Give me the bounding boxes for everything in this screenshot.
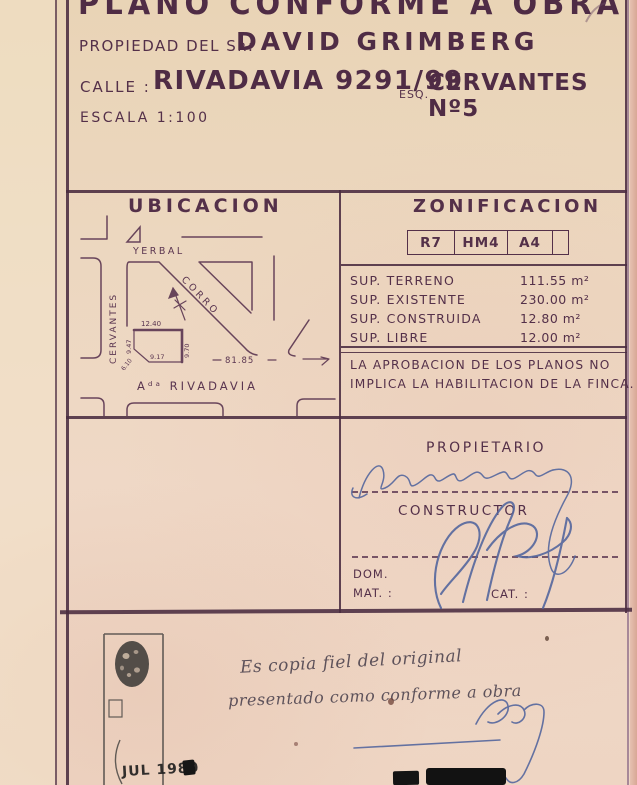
footer-signature-loop2 [498,705,525,723]
zonif-inner-divider [341,264,627,266]
surface-value: 111.55 m² [520,273,612,288]
black-stamp-block-small [393,771,419,785]
street-label-yerbal: YERBAL [132,246,185,257]
zoning-code-r: R7 [408,231,455,254]
ink-speck [294,742,298,746]
lot-dim-left: 9.47 [125,340,133,354]
map-rivadavia-arrow [303,357,329,365]
surface-label: SUP. LIBRE [350,330,428,345]
stamp-date-blob [182,759,196,775]
pen-mark [580,0,620,30]
binding-line [55,0,57,785]
ink-speck [388,698,394,705]
lot-dim-front: 12.40 [141,320,161,328]
scale-label: ESCALA 1:100 [80,110,210,126]
lot-dim-bottom: 9.17 [150,353,164,361]
approval-note-line2: IMPLICA LA HABILITACION DE LA FINCA. [350,377,635,391]
ink-speck [545,636,549,641]
signatures-ink [345,430,630,611]
frontage-value: 81.85 [225,356,254,366]
black-stamp-block-large [426,768,506,785]
owner-name: DAVID GRIMBERG [236,27,538,56]
surface-label: SUP. EXISTENTE [350,292,466,307]
surface-label: SUP. CONSTRUIDA [350,311,482,326]
lot-dim-ochava: 6.10 [120,357,134,372]
zoning-code-box: R7 HM4 A4 [407,230,569,255]
surface-label: SUP. TERRENO [350,273,455,288]
stamp-inner-box [109,700,122,717]
page-title: PLANO CONFORME A OBRA [78,0,624,22]
street-esq-label: ESQ. [399,88,429,101]
street-label-cervantes: CERVANTES [109,293,119,364]
certification-note-line1: Es copia fiel del original [240,646,463,678]
lot-dim-right: 9.70 [183,344,191,358]
map-block-s [127,403,223,416]
north-arrow-icon [169,288,186,320]
location-map: YERBAL CERVANTES CORRO Aᵈᵃ RIVADAVIA 81.… [67,192,339,416]
column-divider [339,190,341,613]
zonif-double-line-b [341,352,627,354]
map-corner-nw [81,216,107,239]
approval-note-line1: LA APROBACION DE LOS PLANOS NO [350,358,611,372]
surface-row-existente: SUP. EXISTENTE 230.00 m² [350,290,612,309]
map-cervantes-east-edge [127,262,129,326]
map-corro-west-edge [129,262,257,355]
street-label: CALLE : [80,78,151,96]
zoning-code-empty [553,231,568,254]
surface-table: SUP. TERRENO 111.55 m² SUP. EXISTENTE 23… [350,271,612,347]
scanned-plan-document: PLANO CONFORME A OBRA PROPIEDAD DEL Sʀ: … [0,0,637,785]
surface-row-terreno: SUP. TERRENO 111.55 m² [350,271,612,290]
surface-row-libre: SUP. LIBRE 12.00 m² [350,328,612,347]
owner-label: PROPIEDAD DEL Sʀ: [79,37,254,55]
map-block-se [297,399,335,416]
footer-signature-loop1 [476,700,508,724]
map-block-east [274,256,309,356]
surface-value: 12.00 m² [520,330,612,345]
street-label-corro: CORRO [179,274,222,317]
surface-value: 12.80 m² [520,311,612,326]
street-label-rivadavia: Aᵈᵃ RIVADAVIA [137,379,258,393]
mid-divider [66,416,627,419]
footer-signature-line [354,740,500,748]
zonificacion-title: ZONIFICACION [413,196,602,217]
surface-value: 230.00 m² [520,292,612,307]
surface-row-construida: SUP. CONSTRUIDA 12.80 m² [350,309,612,328]
map-triangle-mark [127,227,140,242]
zoning-code-hm: HM4 [455,231,508,254]
map-block-west [81,258,101,358]
stamp-bracket-mark [115,740,122,784]
street-corner: CERVANTES Nº5 [428,70,637,122]
zoning-code-a: A4 [508,231,553,254]
propietario-signature [352,466,575,574]
map-block-sw [81,398,104,416]
scan-left-margin [0,0,55,785]
stamp-seal-emblem [115,641,149,687]
constructor-signature [435,502,571,608]
